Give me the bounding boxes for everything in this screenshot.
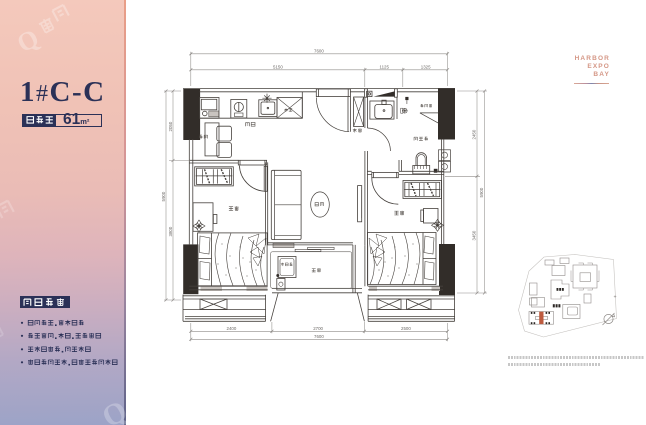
svg-text:Q: Q	[97, 394, 133, 425]
svg-text:Q: Q	[12, 23, 43, 58]
svg-text:3800: 3800	[168, 226, 173, 236]
svg-text:5900: 5900	[161, 191, 166, 201]
svg-text:2450: 2450	[472, 129, 477, 139]
svg-text:7600: 7600	[314, 334, 324, 339]
svg-text:2050: 2050	[168, 121, 173, 131]
svg-text:5150: 5150	[273, 64, 283, 69]
svg-text:7600: 7600	[314, 48, 324, 53]
svg-text:1325: 1325	[421, 64, 431, 69]
svg-text:5900: 5900	[479, 187, 484, 197]
svg-text:3450: 3450	[472, 230, 477, 240]
svg-text:1125: 1125	[380, 64, 390, 69]
svg-text:2400: 2400	[227, 326, 237, 331]
svg-text:2500: 2500	[401, 326, 411, 331]
svg-text:2700: 2700	[313, 326, 323, 331]
